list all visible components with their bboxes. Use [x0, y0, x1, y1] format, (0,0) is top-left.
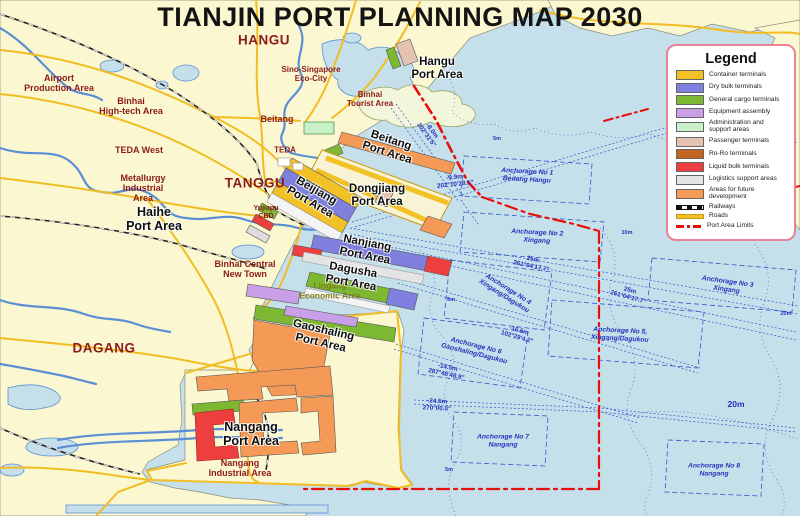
- legend-symbol-future: [676, 189, 704, 199]
- legend-item-roro: Ro-Ro terminals: [676, 149, 786, 159]
- legend-label-container: Container terminals: [709, 72, 766, 79]
- legend-item-dry-bulk: Dry bulk terminals: [676, 83, 786, 93]
- legend-label-equipment: Equipment assembly: [709, 109, 770, 116]
- legend-label-limits: Port Area Limits: [707, 223, 754, 230]
- legend-item-container: Container terminals: [676, 70, 786, 80]
- legend-symbol-limits: [676, 225, 702, 228]
- legend-label-general-cargo: General cargo terminals: [709, 97, 779, 104]
- legend-item-equipment: Equipment assembly: [676, 108, 786, 118]
- legend-item-railways: Railways: [676, 204, 786, 211]
- legend-label-future: Areas for future development: [709, 187, 786, 201]
- legend-symbol-admin: [676, 122, 704, 132]
- legend-symbol-general-cargo: [676, 95, 704, 105]
- legend-label-dry-bulk: Dry bulk terminals: [709, 84, 762, 91]
- legend-symbol-liquid: [676, 162, 704, 172]
- legend-symbol-dry-bulk: [676, 83, 704, 93]
- legend: Legend Container terminalsDry bulk termi…: [666, 44, 796, 241]
- tianjin-port-map: TIANJIN PORT PLANNING MAP 2030 HANGUTANG…: [0, 0, 800, 516]
- legend-item-limits: Port Area Limits: [676, 223, 786, 230]
- legend-label-roads: Roads: [709, 213, 728, 220]
- legend-label-logistics: Logistics support areas: [709, 176, 777, 183]
- legend-symbol-equipment: [676, 108, 704, 118]
- legend-symbol-roads: [676, 214, 704, 219]
- legend-item-general-cargo: General cargo terminals: [676, 95, 786, 105]
- legend-label-roro: Ro-Ro terminals: [709, 151, 757, 158]
- legend-symbol-passenger: [676, 137, 704, 147]
- legend-symbol-roro: [676, 149, 704, 159]
- legend-item-admin: Administration and support areas: [676, 120, 786, 134]
- legend-symbol-railways: [676, 205, 704, 210]
- legend-item-logistics: Logistics support areas: [676, 175, 786, 185]
- legend-label-railways: Railways: [709, 204, 735, 211]
- beitang-admin: [304, 122, 334, 134]
- legend-item-roads: Roads: [676, 213, 786, 220]
- legend-item-future: Areas for future development: [676, 187, 786, 201]
- legend-label-passenger: Passenger terminals: [709, 138, 769, 145]
- legend-title: Legend: [676, 51, 786, 67]
- legend-label-admin: Administration and support areas: [709, 120, 786, 134]
- legend-label-liquid: Liquid bulk terminals: [709, 164, 769, 171]
- legend-symbol-container: [676, 70, 704, 80]
- legend-symbol-logistics: [676, 175, 704, 185]
- legend-item-passenger: Passenger terminals: [676, 137, 786, 147]
- legend-item-liquid: Liquid bulk terminals: [676, 162, 786, 172]
- legend-items: Container terminalsDry bulk terminalsGen…: [676, 70, 786, 230]
